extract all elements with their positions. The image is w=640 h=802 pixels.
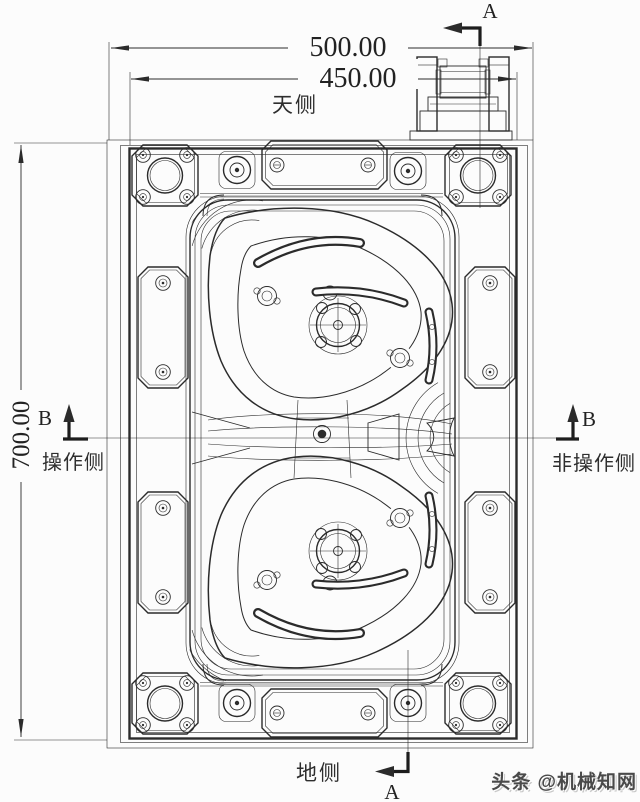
dimension-700: 700.00 xyxy=(7,143,107,740)
clamp-pad-right-upper xyxy=(465,267,515,388)
label-bottom-side: 地侧 xyxy=(296,762,342,785)
label-non-operator-side: 非操作侧 xyxy=(552,452,636,475)
mold-plate-drawing-sheet: 500.00 450.00 700.00 A A xyxy=(0,0,640,802)
corner-block-top-right xyxy=(445,145,511,206)
center-band xyxy=(192,400,452,478)
dimension-450: 450.00 xyxy=(130,59,517,145)
watermark: 头条 @机械知网 xyxy=(491,767,637,794)
section-b-left-label: B xyxy=(38,406,52,430)
cad-drawing: 500.00 450.00 700.00 A A xyxy=(0,0,640,802)
corner-block-bottom-right xyxy=(445,673,511,734)
label-operator-side: 操作侧 xyxy=(42,451,105,474)
dim-500-value: 500.00 xyxy=(310,32,387,63)
label-top-side: 天侧 xyxy=(272,94,318,117)
section-a-bottom-label: A xyxy=(384,780,400,802)
guide-bushing-top-right xyxy=(390,153,426,190)
corner-block-bottom-left xyxy=(132,673,198,734)
cavity-wing-top xyxy=(208,208,452,420)
sprue xyxy=(314,426,331,443)
guide-bushing-bottom-left xyxy=(219,685,255,722)
section-arrow-b-left: B xyxy=(38,404,573,440)
section-arrow-a-bottom: A xyxy=(375,650,410,802)
plate-outline xyxy=(107,140,533,748)
section-b-right-label: B xyxy=(582,407,596,431)
clamp-pad-right-lower xyxy=(465,492,515,613)
guide-bushing-top-left xyxy=(219,152,255,189)
corner-block-top-left xyxy=(132,145,198,206)
section-a-top-label: A xyxy=(482,0,498,23)
clamp-pad-left-lower xyxy=(138,492,188,613)
fan-gate xyxy=(368,414,399,460)
latch-lock-unit xyxy=(410,57,512,140)
dim-700-value: 700.00 xyxy=(8,401,35,470)
dim-450-value: 450.00 xyxy=(320,63,397,94)
lock-bar-bottom xyxy=(262,689,387,737)
clamp-pad-left-upper xyxy=(138,267,188,388)
cavity-wing-bottom xyxy=(208,456,452,668)
section-arrow-b-right: B xyxy=(556,404,596,440)
